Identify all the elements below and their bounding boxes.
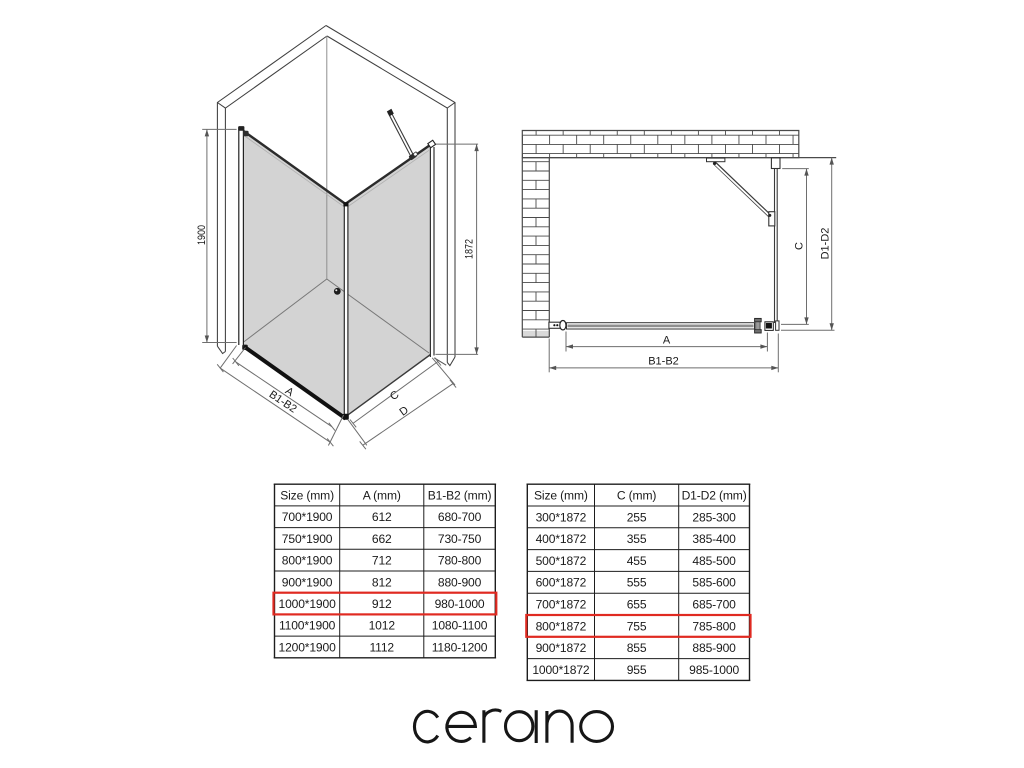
svg-text:Size (mm): Size (mm) (534, 489, 588, 503)
svg-text:C: C (793, 242, 805, 250)
svg-text:1900: 1900 (196, 225, 208, 245)
svg-text:B1-B2 (mm): B1-B2 (mm) (428, 488, 492, 502)
svg-text:C: C (388, 389, 402, 403)
svg-text:655: 655 (627, 598, 647, 612)
svg-text:912: 912 (372, 597, 392, 611)
svg-text:400*1872: 400*1872 (536, 532, 587, 546)
svg-text:300*1872: 300*1872 (536, 510, 587, 524)
svg-text:D: D (397, 404, 411, 418)
svg-text:900*1900: 900*1900 (282, 575, 333, 589)
svg-text:1200*1900: 1200*1900 (279, 640, 337, 654)
svg-text:785-800: 785-800 (692, 619, 736, 633)
svg-text:885-900: 885-900 (692, 641, 736, 655)
svg-text:1012: 1012 (369, 619, 396, 633)
svg-text:285-300: 285-300 (692, 510, 736, 524)
svg-text:612: 612 (372, 510, 392, 524)
svg-text:855: 855 (627, 641, 647, 655)
svg-text:800*1872: 800*1872 (536, 619, 587, 633)
svg-text:1000*1900: 1000*1900 (279, 597, 337, 611)
svg-text:880-900: 880-900 (438, 575, 482, 589)
svg-text:485-500: 485-500 (692, 554, 736, 568)
svg-text:685-700: 685-700 (692, 598, 736, 612)
svg-text:700*1872: 700*1872 (536, 598, 587, 612)
svg-text:1100*1900: 1100*1900 (279, 619, 336, 633)
svg-text:B1-B2: B1-B2 (648, 355, 679, 367)
svg-text:355: 355 (627, 532, 647, 546)
svg-text:662: 662 (372, 532, 392, 546)
svg-text:985-1000: 985-1000 (689, 663, 739, 677)
svg-text:1872: 1872 (464, 239, 476, 259)
svg-text:455: 455 (627, 554, 647, 568)
svg-text:900*1872: 900*1872 (536, 641, 587, 655)
svg-text:955: 955 (627, 663, 647, 677)
svg-text:385-400: 385-400 (692, 532, 736, 546)
svg-text:D1-D2: D1-D2 (819, 228, 831, 260)
svg-text:500*1872: 500*1872 (536, 554, 587, 568)
svg-text:A (mm): A (mm) (363, 488, 401, 502)
svg-text:555: 555 (627, 576, 647, 590)
svg-text:1180-1200: 1180-1200 (432, 640, 488, 654)
svg-text:D1-D2 (mm): D1-D2 (mm) (682, 489, 747, 503)
svg-text:780-800: 780-800 (438, 554, 482, 568)
svg-text:750*1900: 750*1900 (282, 532, 333, 546)
svg-text:A: A (663, 334, 671, 346)
svg-text:B1-B2: B1-B2 (267, 388, 299, 415)
svg-text:980-1000: 980-1000 (435, 597, 485, 611)
svg-text:Size (mm): Size (mm) (280, 488, 334, 502)
svg-text:255: 255 (627, 510, 647, 524)
svg-text:700*1900: 700*1900 (282, 510, 333, 524)
svg-text:800*1900: 800*1900 (282, 554, 333, 568)
svg-text:1112: 1112 (369, 640, 394, 654)
svg-text:680-700: 680-700 (438, 510, 482, 524)
svg-text:1080-1100: 1080-1100 (432, 619, 488, 633)
svg-text:712: 712 (372, 554, 392, 568)
svg-text:600*1872: 600*1872 (536, 576, 587, 590)
svg-text:585-600: 585-600 (692, 576, 736, 590)
svg-text:1000*1872: 1000*1872 (532, 663, 590, 677)
svg-text:730-750: 730-750 (438, 532, 482, 546)
svg-text:755: 755 (627, 619, 647, 633)
svg-text:C (mm): C (mm) (617, 489, 657, 503)
svg-text:812: 812 (372, 575, 392, 589)
